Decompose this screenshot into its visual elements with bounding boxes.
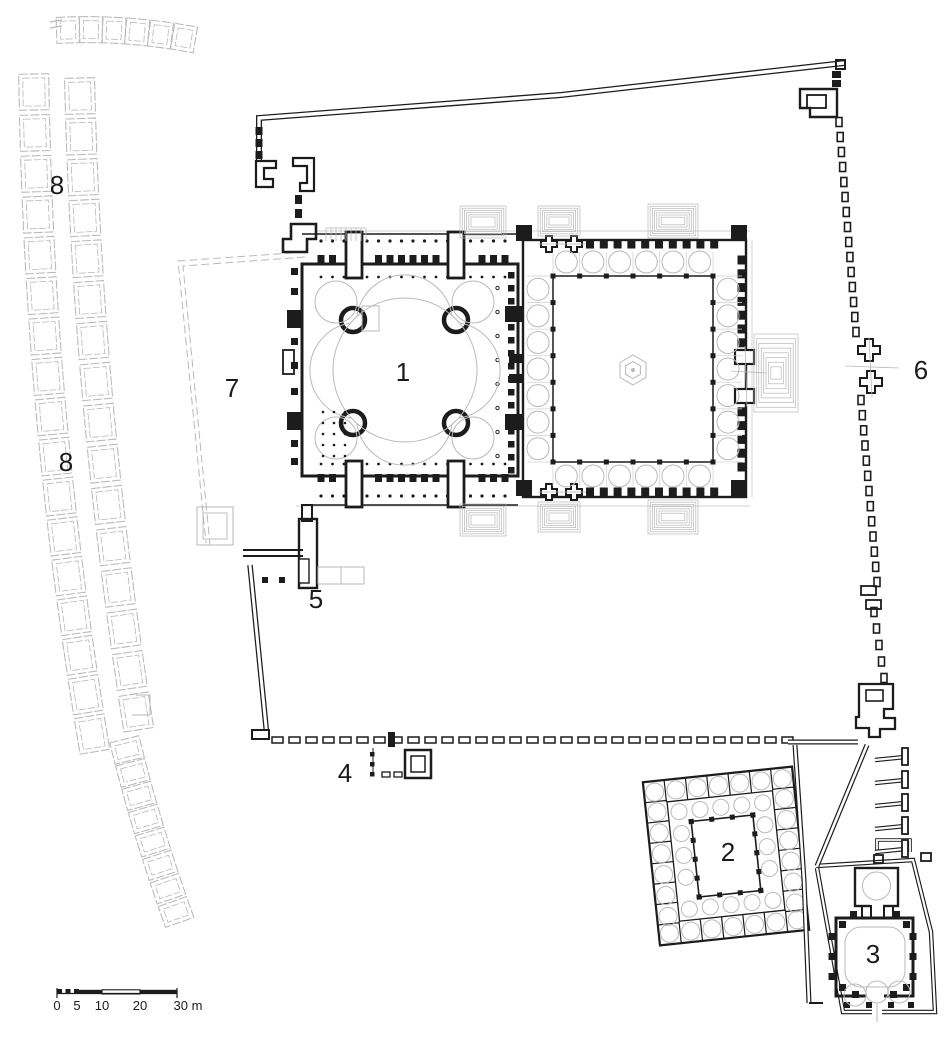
plan-label-5: 5 bbox=[309, 584, 323, 614]
plan-label-8-lower: 8 bbox=[59, 447, 73, 477]
scale-label-0: 0 bbox=[53, 998, 60, 1013]
scale-label-30m: 30 m bbox=[174, 998, 203, 1013]
plan-label-2: 2 bbox=[721, 837, 735, 867]
street-walls bbox=[788, 742, 908, 1003]
arasta-shop-rows bbox=[19, 17, 198, 928]
scale-label-10: 10 bbox=[95, 998, 109, 1013]
mosque-courtyard bbox=[460, 204, 798, 536]
plan-label-6: 6 bbox=[914, 355, 928, 385]
scale-bar-labels: 0 5 10 20 30 m bbox=[53, 998, 202, 1013]
plan-label-8-upper: 8 bbox=[50, 170, 64, 200]
scale-bar bbox=[57, 988, 177, 998]
plan-label-1: 1 bbox=[396, 357, 410, 387]
plan-sheet: 1 2 3 4 5 6 7 8 8 0 5 10 20 30 m bbox=[0, 0, 952, 1058]
scale-label-5: 5 bbox=[73, 998, 80, 1013]
plan-label-4: 4 bbox=[338, 758, 352, 788]
site-plan-drawing: 1 2 3 4 5 6 7 8 8 0 5 10 20 30 m bbox=[0, 0, 952, 1058]
mausoleum-enclosure bbox=[816, 840, 935, 1022]
plan-label-7: 7 bbox=[225, 373, 239, 403]
plan-label-3: 3 bbox=[866, 939, 880, 969]
scale-label-20: 20 bbox=[133, 998, 147, 1013]
